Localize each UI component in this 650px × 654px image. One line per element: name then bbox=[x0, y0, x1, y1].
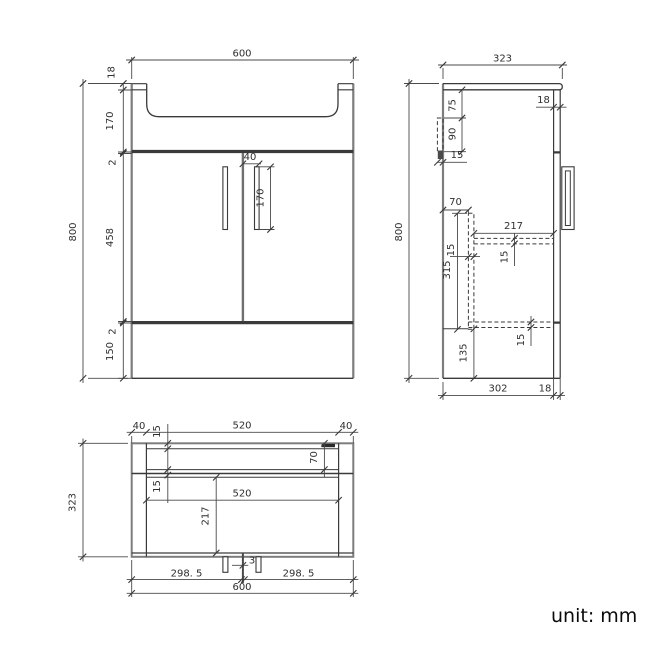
plan-right-handle bbox=[256, 557, 261, 573]
plan-door-gap-dim: 3 bbox=[249, 556, 255, 567]
handle-length-dim: 170 bbox=[256, 188, 267, 207]
plan-door-right-dim: 298. 5 bbox=[283, 568, 315, 579]
left-door-handle bbox=[223, 167, 228, 230]
front-chain-458: 458 bbox=[105, 228, 116, 247]
wall-bracket-plate bbox=[438, 151, 443, 160]
front-chain-2a: 2 bbox=[108, 159, 119, 165]
plan-basin-width-dim: 520 bbox=[232, 421, 251, 432]
unit-note: unit: mm bbox=[551, 605, 637, 627]
plan-view-dimensions: 40 520 40 15 70 15 520 217 323 3 bbox=[68, 421, 359, 598]
divider-offset-dim: 70 bbox=[449, 197, 462, 208]
front-chain-150: 150 bbox=[105, 342, 116, 361]
plan-view-outline bbox=[132, 443, 354, 583]
door-thickness-top-dim: 18 bbox=[537, 95, 550, 106]
vanity-unit-drawing: 600 800 18 170 2 458 2 150 40 170 bbox=[0, 0, 650, 650]
plan-edge-right-dim: 40 bbox=[340, 421, 353, 432]
front-height-dim: 800 bbox=[68, 222, 79, 241]
internal-divider-hidden bbox=[468, 213, 474, 329]
divider-thickness-dim: 15 bbox=[446, 244, 457, 257]
side-interior-depth-dim: 217 bbox=[504, 221, 523, 232]
bracket-offset-dim: 75 bbox=[448, 99, 459, 112]
plan-bowl-offset-dim: 70 bbox=[309, 451, 320, 464]
front-chain-18: 18 bbox=[107, 66, 118, 79]
side-view: 323 800 75 90 15 18 70 217 15 bbox=[394, 54, 574, 401]
basin-bowl bbox=[147, 84, 338, 117]
divider-height-dim: 315 bbox=[442, 260, 453, 279]
plan-back-rail-dim: 15 bbox=[152, 425, 163, 438]
side-handle-outer bbox=[562, 167, 574, 230]
bottom-shelf-thickness-dim: 15 bbox=[516, 334, 527, 347]
side-depth-dim: 323 bbox=[493, 54, 512, 65]
plan-door-left-dim: 298. 5 bbox=[171, 568, 203, 579]
technical-drawing-page: 600 800 18 170 2 458 2 150 40 170 bbox=[0, 0, 650, 650]
plan-depth-dim: 323 bbox=[68, 493, 79, 512]
body-depth-dim: 302 bbox=[488, 384, 507, 395]
door-thickness-bottom-dim: 18 bbox=[539, 384, 552, 395]
shelf-thickness-dim: 15 bbox=[500, 251, 511, 264]
front-view: 600 800 18 170 2 458 2 150 40 170 bbox=[68, 49, 359, 384]
plan-interior-width-dim: 520 bbox=[232, 489, 251, 500]
plan-total-width-dim: 600 bbox=[232, 582, 251, 593]
bracket-length-dim: 90 bbox=[448, 128, 459, 141]
side-handle-inner bbox=[565, 171, 570, 226]
plan-edge-left-dim: 40 bbox=[133, 421, 146, 432]
front-chain-170: 170 bbox=[105, 111, 116, 130]
handle-offset-dim: 40 bbox=[244, 152, 257, 163]
front-chain-2b: 2 bbox=[108, 328, 119, 334]
front-view-outline bbox=[132, 84, 354, 379]
side-view-dimensions: 323 800 75 90 15 18 70 217 15 bbox=[394, 54, 567, 401]
front-width-dim: 600 bbox=[232, 49, 251, 60]
plan-view: 40 520 40 15 70 15 520 217 323 3 bbox=[68, 421, 359, 598]
plan-interior-depth-dim: 217 bbox=[201, 506, 212, 525]
plan-rim-dim: 15 bbox=[152, 480, 163, 493]
countertop-profile bbox=[443, 84, 562, 90]
bracket-width-dim: 15 bbox=[451, 150, 464, 161]
front-view-dimensions: 600 800 18 170 2 458 2 150 40 170 bbox=[68, 49, 359, 384]
plan-left-handle bbox=[223, 557, 228, 573]
bottom-shelf-hidden bbox=[468, 322, 553, 328]
base-height-dim: 135 bbox=[459, 343, 470, 362]
side-height-dim: 800 bbox=[394, 222, 405, 241]
